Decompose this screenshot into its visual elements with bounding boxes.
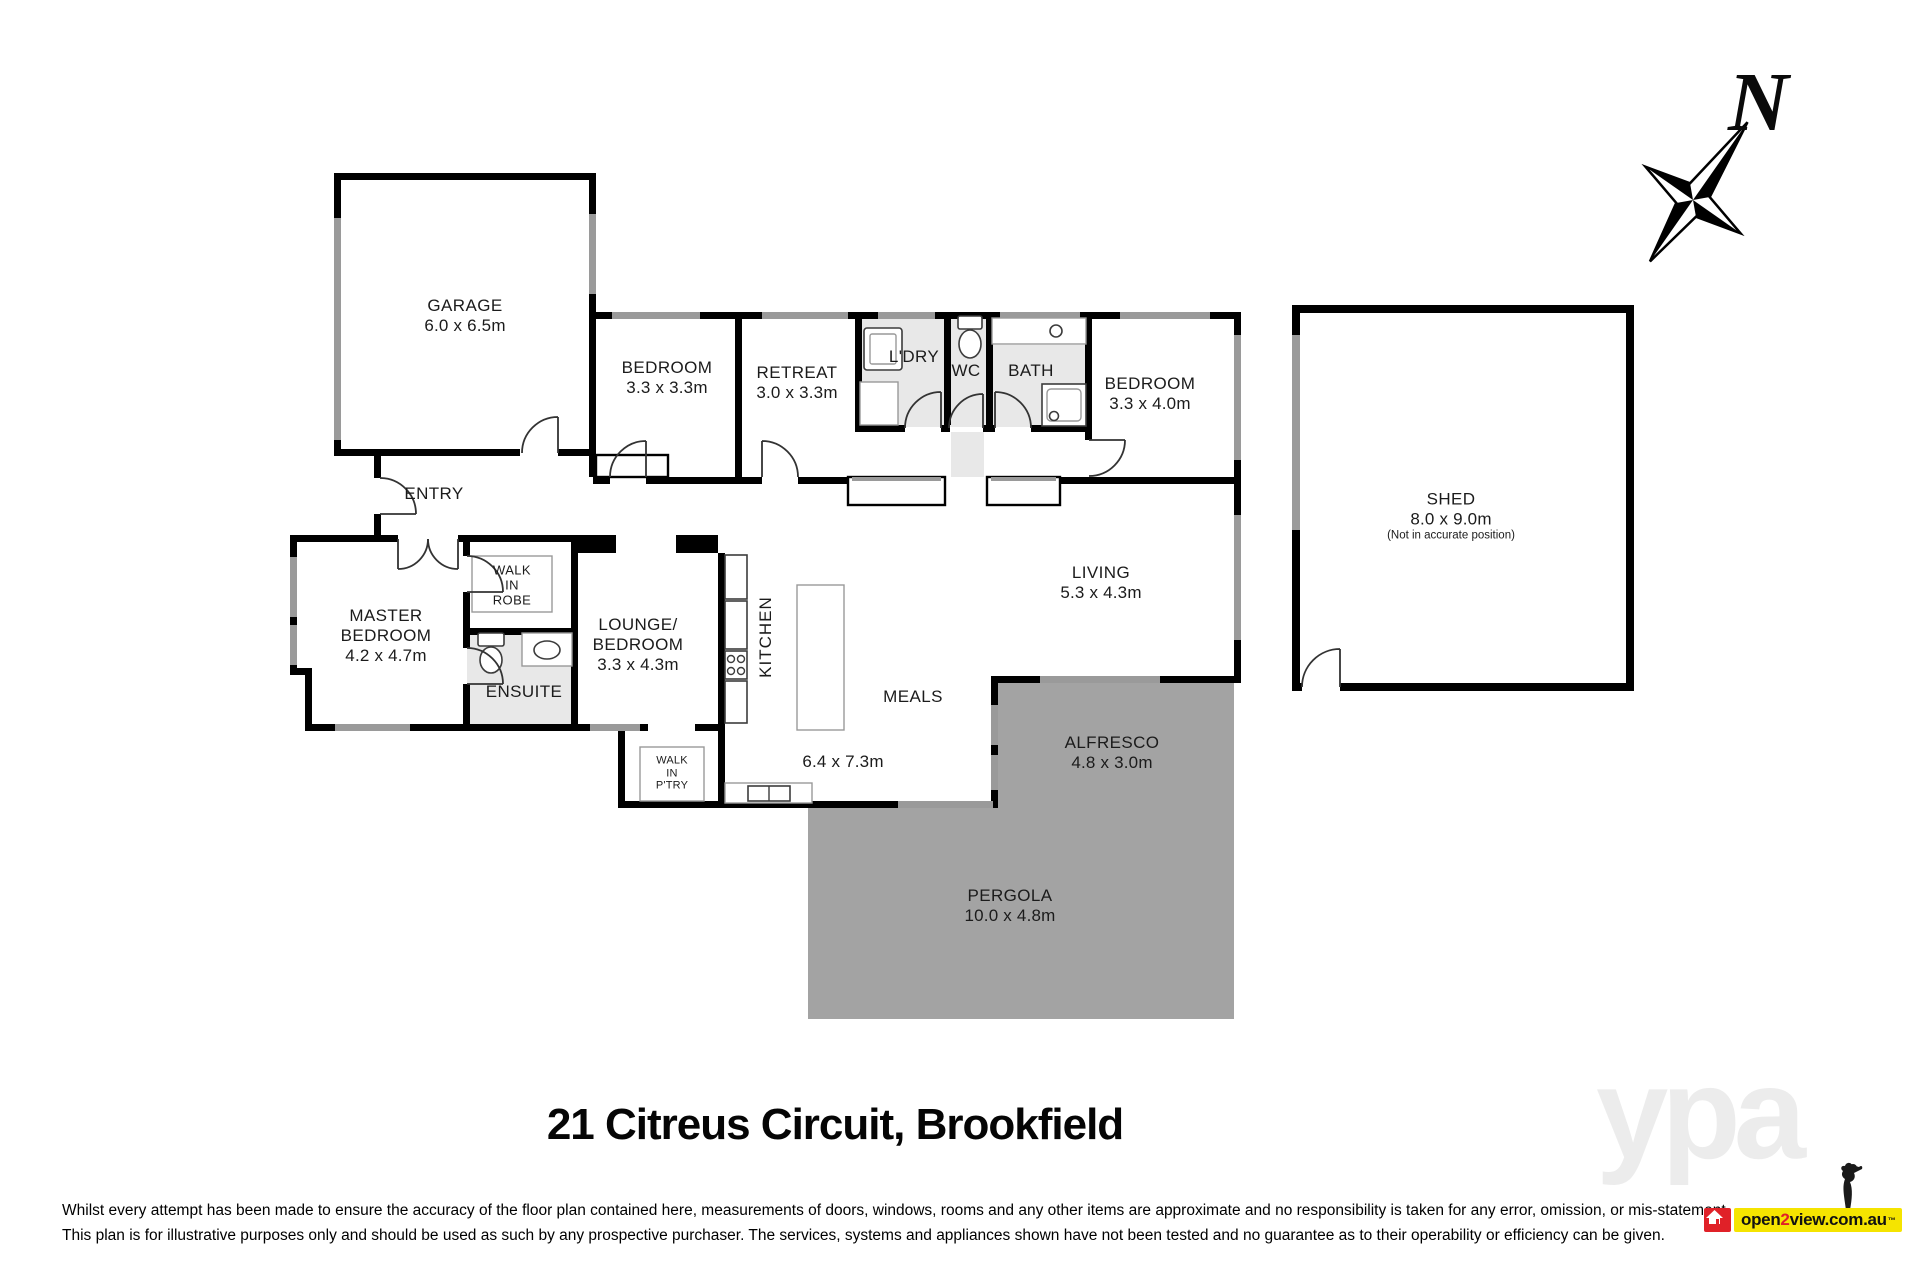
page-title: 21 Citreus Circuit, Brookfield bbox=[547, 1100, 1123, 1150]
bath-vanity bbox=[992, 318, 1086, 344]
room-label-kitchen: KITCHEN bbox=[756, 596, 776, 678]
room-label-ensuite: ENSUITE bbox=[486, 682, 562, 702]
room-label-retreat: RETREAT 3.0 x 3.3m bbox=[756, 363, 837, 403]
open2view-wordmark: open2view.com.au™ bbox=[1734, 1208, 1902, 1232]
room-label-bath: BATH bbox=[1008, 361, 1054, 381]
ypa-watermark: ypa bbox=[1596, 1048, 1799, 1178]
photographer-icon bbox=[1841, 1163, 1862, 1210]
room-label-walk-in-robe: WALK IN ROBE bbox=[493, 563, 531, 608]
outdoor-areas bbox=[808, 683, 1234, 1019]
room-label-master-bedroom: MASTER BEDROOM 4.2 x 4.7m bbox=[341, 606, 432, 666]
kitchen-island bbox=[797, 585, 844, 730]
open2view-logo: open2view.com.au™ bbox=[1704, 1208, 1902, 1232]
shed-door bbox=[1302, 649, 1340, 687]
house-icon bbox=[1704, 1208, 1731, 1232]
room-label-pergola: PERGOLA 10.0 x 4.8m bbox=[964, 886, 1055, 926]
disclaimer: Whilst every attempt has been made to en… bbox=[62, 1198, 1730, 1248]
room-label-lounge-bedroom: LOUNGE/ BEDROOM 3.3 x 4.3m bbox=[593, 615, 684, 675]
label-open-plan-dims: 6.4 x 7.3m bbox=[802, 752, 883, 772]
wc-toilet bbox=[958, 316, 982, 329]
room-label-shed: SHED 8.0 x 9.0m (Not in accurate positio… bbox=[1387, 490, 1515, 543]
floor-plan-page: N GARAGE 6.0 x 6.5m BEDROOM 3.3 x 3.3m R… bbox=[0, 0, 1920, 1280]
room-label-alfresco: ALFRESCO 4.8 x 3.0m bbox=[1065, 733, 1160, 773]
kitchen-pantry-cupboard bbox=[725, 555, 747, 599]
room-label-living: LIVING 5.3 x 4.3m bbox=[1060, 563, 1141, 603]
room-label-bedroom-top: BEDROOM 3.3 x 3.3m bbox=[622, 358, 713, 398]
room-label-meals: MEALS bbox=[883, 687, 943, 707]
room-label-laundry: L'DRY bbox=[889, 347, 939, 367]
laundry-bench bbox=[860, 382, 898, 425]
room-label-wc: WC bbox=[951, 361, 980, 381]
compass-icon: N bbox=[1602, 56, 1795, 295]
disclaimer-line-2: This plan is for illustrative purposes o… bbox=[62, 1223, 1730, 1248]
room-label-bedroom-right: BEDROOM 3.3 x 4.0m bbox=[1105, 374, 1196, 414]
disclaimer-line-1: Whilst every attempt has been made to en… bbox=[62, 1198, 1730, 1223]
room-label-walk-in-pantry: WALK IN P'TRY bbox=[656, 754, 688, 792]
room-label-garage: GARAGE 6.0 x 6.5m bbox=[424, 296, 505, 336]
cooktop bbox=[725, 651, 747, 679]
room-label-entry: ENTRY bbox=[404, 484, 463, 504]
compass-north-label: N bbox=[1727, 56, 1792, 149]
ensuite-toilet bbox=[478, 633, 504, 646]
